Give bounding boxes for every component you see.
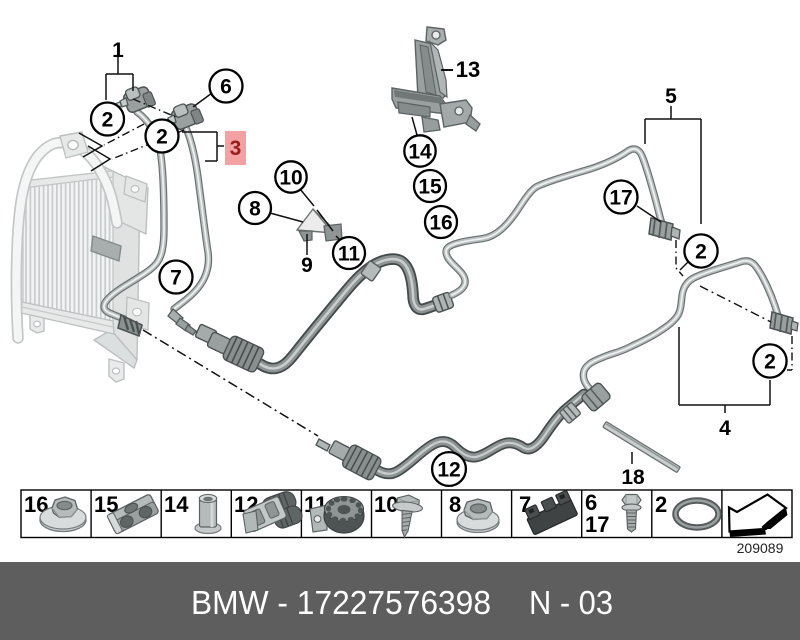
svg-text:2: 2 <box>655 492 667 517</box>
svg-text:3: 3 <box>230 137 242 160</box>
svg-text:2: 2 <box>695 241 707 264</box>
svg-text:2: 2 <box>764 351 776 374</box>
svg-text:1: 1 <box>112 39 124 62</box>
svg-text:5: 5 <box>665 85 677 108</box>
svg-text:15: 15 <box>418 176 442 199</box>
svg-text:18: 18 <box>621 466 645 489</box>
svg-text:11: 11 <box>338 243 361 266</box>
svg-text:4: 4 <box>719 417 731 440</box>
svg-text:8: 8 <box>449 492 461 517</box>
svg-text:2: 2 <box>102 109 114 132</box>
svg-text:2: 2 <box>156 126 168 149</box>
svg-text:14: 14 <box>408 141 432 164</box>
svg-text:10: 10 <box>279 167 302 190</box>
svg-text:N - 03: N - 03 <box>529 585 613 622</box>
svg-text:17: 17 <box>609 187 632 210</box>
svg-text:9: 9 <box>301 254 313 277</box>
svg-text:7: 7 <box>170 267 182 290</box>
svg-text:209089: 209089 <box>737 540 784 556</box>
svg-text:16: 16 <box>429 212 452 235</box>
svg-text:14: 14 <box>164 492 189 517</box>
svg-text:12: 12 <box>437 459 460 482</box>
svg-text:17: 17 <box>585 512 609 537</box>
svg-text:6: 6 <box>220 76 232 99</box>
svg-text:BMW - 17227576398: BMW - 17227576398 <box>191 585 491 622</box>
svg-text:13: 13 <box>456 57 480 82</box>
svg-text:8: 8 <box>249 198 261 221</box>
